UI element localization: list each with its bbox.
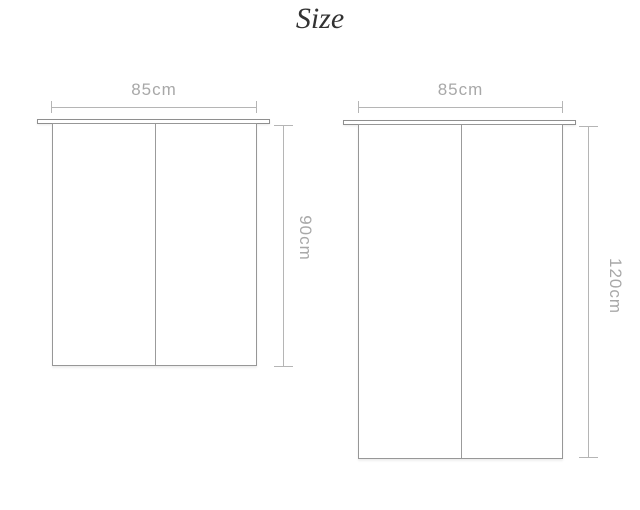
- panel-divider-line: [155, 124, 156, 365]
- width-dimension-line: [358, 107, 563, 108]
- panel-divider-line: [461, 125, 462, 458]
- width-dimension-label: 85cm: [51, 80, 257, 100]
- page-title: Size: [0, 2, 640, 36]
- height-dimension-line: [588, 126, 589, 458]
- width-dimension-line: [51, 107, 257, 108]
- size-guide-image: Size 85cm 90cm 85cm 120cm: [0, 0, 640, 510]
- curtain-panel: [52, 123, 257, 366]
- width-dimension-label: 85cm: [358, 80, 563, 100]
- curtain-panel: [358, 124, 563, 459]
- height-dimension-label: 120cm: [605, 251, 625, 321]
- height-dimension-line: [283, 125, 284, 367]
- height-dimension-label: 90cm: [295, 208, 315, 268]
